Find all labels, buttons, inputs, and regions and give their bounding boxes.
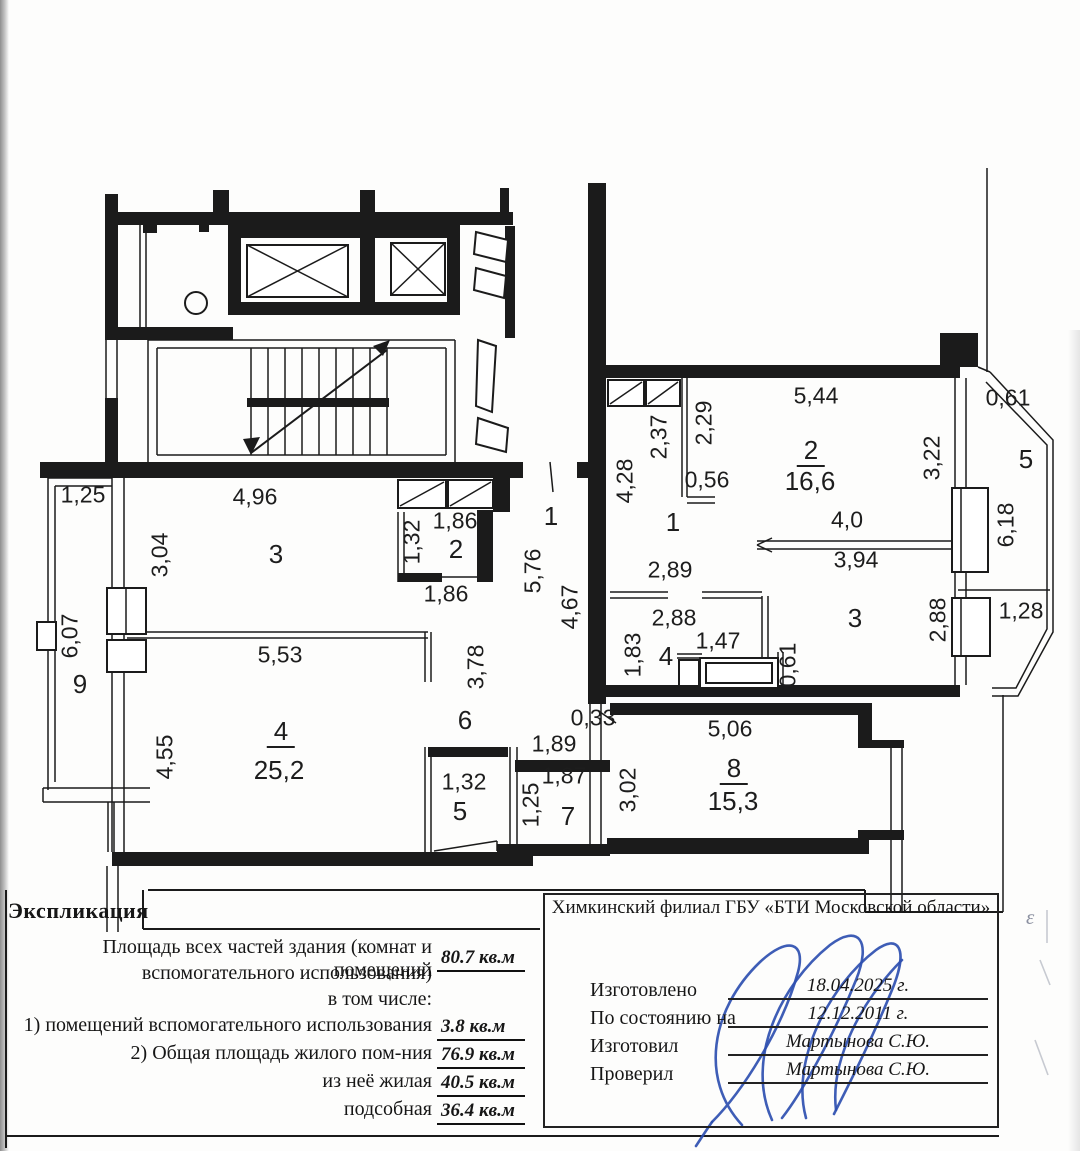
room-number-label: 5 xyxy=(453,798,467,824)
explication-title: Экспликация xyxy=(8,898,149,924)
room-number-label: 1 xyxy=(544,503,558,529)
explication-row-value: 40.5 кв.м xyxy=(437,1072,525,1097)
room-number-label: 3 xyxy=(848,605,862,631)
dimension-label: 5,53 xyxy=(258,644,303,667)
stamp-row-line xyxy=(728,998,988,1000)
stamp-row-value: Мартынова С.Ю. xyxy=(748,1059,968,1081)
dimension-label: 3,04 xyxy=(149,533,172,578)
dimension-label: 1,32 xyxy=(401,520,424,565)
explication-row-label: 1) помещений вспомогательного использова… xyxy=(0,1014,432,1037)
stamp-row-value: 12.12.2011 г. xyxy=(748,1003,968,1025)
dimension-label: 3,22 xyxy=(921,436,944,481)
dimension-label: 3,78 xyxy=(465,645,488,690)
dimension-label: 0,61 xyxy=(777,643,800,688)
explication-row-label: 2) Общая площадь жилого пом-ния xyxy=(0,1042,432,1065)
dimension-label: 3,94 xyxy=(834,549,879,572)
dimension-label: 5,44 xyxy=(794,385,839,408)
dimension-label: 1,89 xyxy=(532,733,577,756)
dimension-label: 4,67 xyxy=(559,585,582,630)
dimension-label: 4,55 xyxy=(154,735,177,780)
room-number-label: 5 xyxy=(1019,446,1033,472)
stamp-row-label: Изготовлено xyxy=(590,979,697,1002)
pencil-marks xyxy=(1035,910,1050,1075)
dimension-label: 2,88 xyxy=(927,598,950,643)
dimension-label: 5,76 xyxy=(522,549,545,594)
dimension-label: 0,61 xyxy=(986,387,1031,410)
explication-row-value: 76.9 кв.м xyxy=(437,1044,525,1069)
scanned-floorplan-page: 1,254,963,0431,321,8621,8615,764,676,079… xyxy=(0,0,1080,1151)
explication-row-value: 36.4 кв.м xyxy=(437,1100,525,1125)
stamp-row-label: По состоянию на xyxy=(590,1007,736,1030)
dimension-label: 1,47 xyxy=(696,630,741,653)
stamp-row-label: Проверил xyxy=(590,1063,673,1086)
explication-row-label: подсобная xyxy=(0,1098,432,1121)
including-label: в том числе: xyxy=(0,988,432,1011)
dimension-label: 6,18 xyxy=(995,503,1018,548)
dimension-label: 4,0 xyxy=(831,509,863,532)
dimension-label: 1,83 xyxy=(622,633,645,678)
room-number-label: 6 xyxy=(458,707,472,733)
total-area-value: 80.7 кв.м xyxy=(437,947,525,972)
dimension-label: 1,86 xyxy=(424,583,469,606)
stamp-row-line xyxy=(728,1026,988,1028)
stamp-row-line xyxy=(728,1054,988,1056)
dimension-label: 2,89 xyxy=(648,559,693,582)
room-area-label: 16,6 xyxy=(785,468,836,494)
stamp-row-line xyxy=(728,1082,988,1084)
dimension-label: 0,33 xyxy=(571,707,616,730)
room-number-label: 4 xyxy=(267,718,295,748)
room-number-label: 2 xyxy=(797,437,825,467)
room-number-label: 4 xyxy=(659,643,673,669)
dimension-label: 1,28 xyxy=(999,600,1044,623)
dimension-label: 1,87 xyxy=(542,765,587,788)
stamp-row-value: 18.04.2025 г. xyxy=(748,975,968,997)
room-number-label: 3 xyxy=(269,541,283,567)
dimension-label: 2,29 xyxy=(693,401,716,446)
dimension-label: 0,56 xyxy=(685,469,730,492)
room-number-label: 2 xyxy=(449,536,463,562)
dimension-label: 1,25 xyxy=(520,783,543,828)
room-number-label: 9 xyxy=(73,671,87,697)
room-area-label: 15,3 xyxy=(708,788,759,814)
dimension-label: 3,02 xyxy=(617,768,640,813)
dimension-label: 5,06 xyxy=(708,718,753,741)
room-number-label: 7 xyxy=(561,803,575,829)
handwritten-mark: ε xyxy=(1026,905,1034,930)
room-number-label: 1 xyxy=(666,509,680,535)
organization-name: Химкинский филиал ГБУ «БТИ Московской об… xyxy=(543,897,999,919)
explication-row-value: 3.8 кв.м xyxy=(437,1016,525,1041)
explication-row-label: из неё жилая xyxy=(0,1070,432,1093)
room-area-label: 25,2 xyxy=(254,757,305,783)
stamp-row-value: Мартынова С.Ю. xyxy=(748,1031,968,1053)
dimension-label: 1,25 xyxy=(61,484,106,507)
dimension-label: 2,37 xyxy=(648,415,671,460)
plan-labels-layer: 1,254,963,0431,321,8621,8615,764,676,079… xyxy=(0,0,1080,900)
dimension-label: 4,96 xyxy=(233,486,278,509)
dimension-label: 6,07 xyxy=(59,614,82,659)
stamp-row-label: Изготовил xyxy=(590,1035,678,1058)
dimension-label: 4,28 xyxy=(614,459,637,504)
room-number-label: 8 xyxy=(720,755,748,785)
explication-line2: вспомогательного использования) xyxy=(0,962,432,985)
dimension-label: 1,86 xyxy=(433,510,478,533)
dimension-label: 1,32 xyxy=(442,771,487,794)
dimension-label: 2,88 xyxy=(652,607,697,630)
